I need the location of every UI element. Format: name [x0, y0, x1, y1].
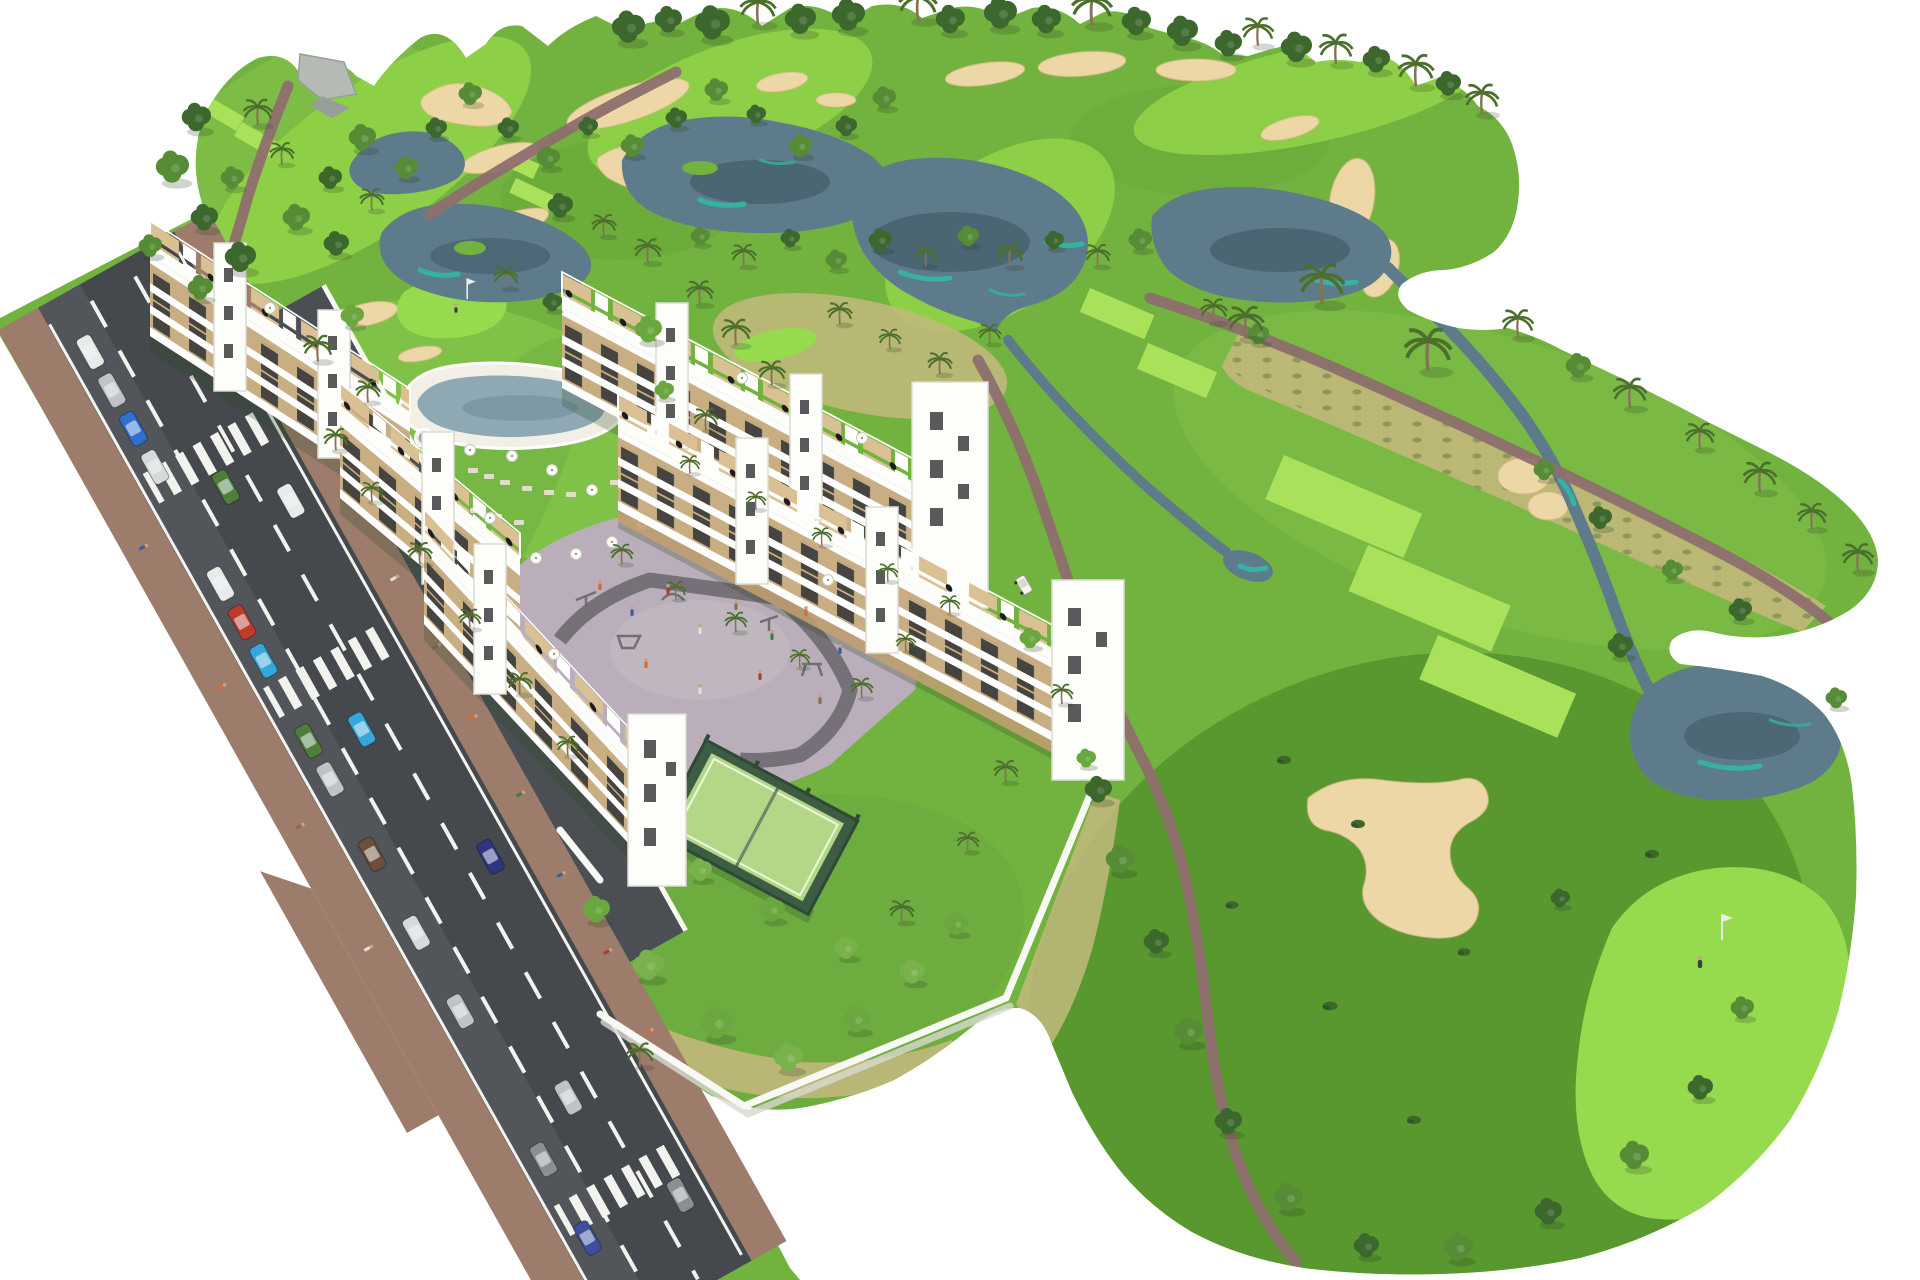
masterplan-render: Aerial 3D architectural render of a golf…	[0, 0, 1920, 1280]
aerial-render-svg: Aerial 3D architectural render of a golf…	[0, 0, 1920, 1280]
end-tower	[628, 714, 686, 886]
